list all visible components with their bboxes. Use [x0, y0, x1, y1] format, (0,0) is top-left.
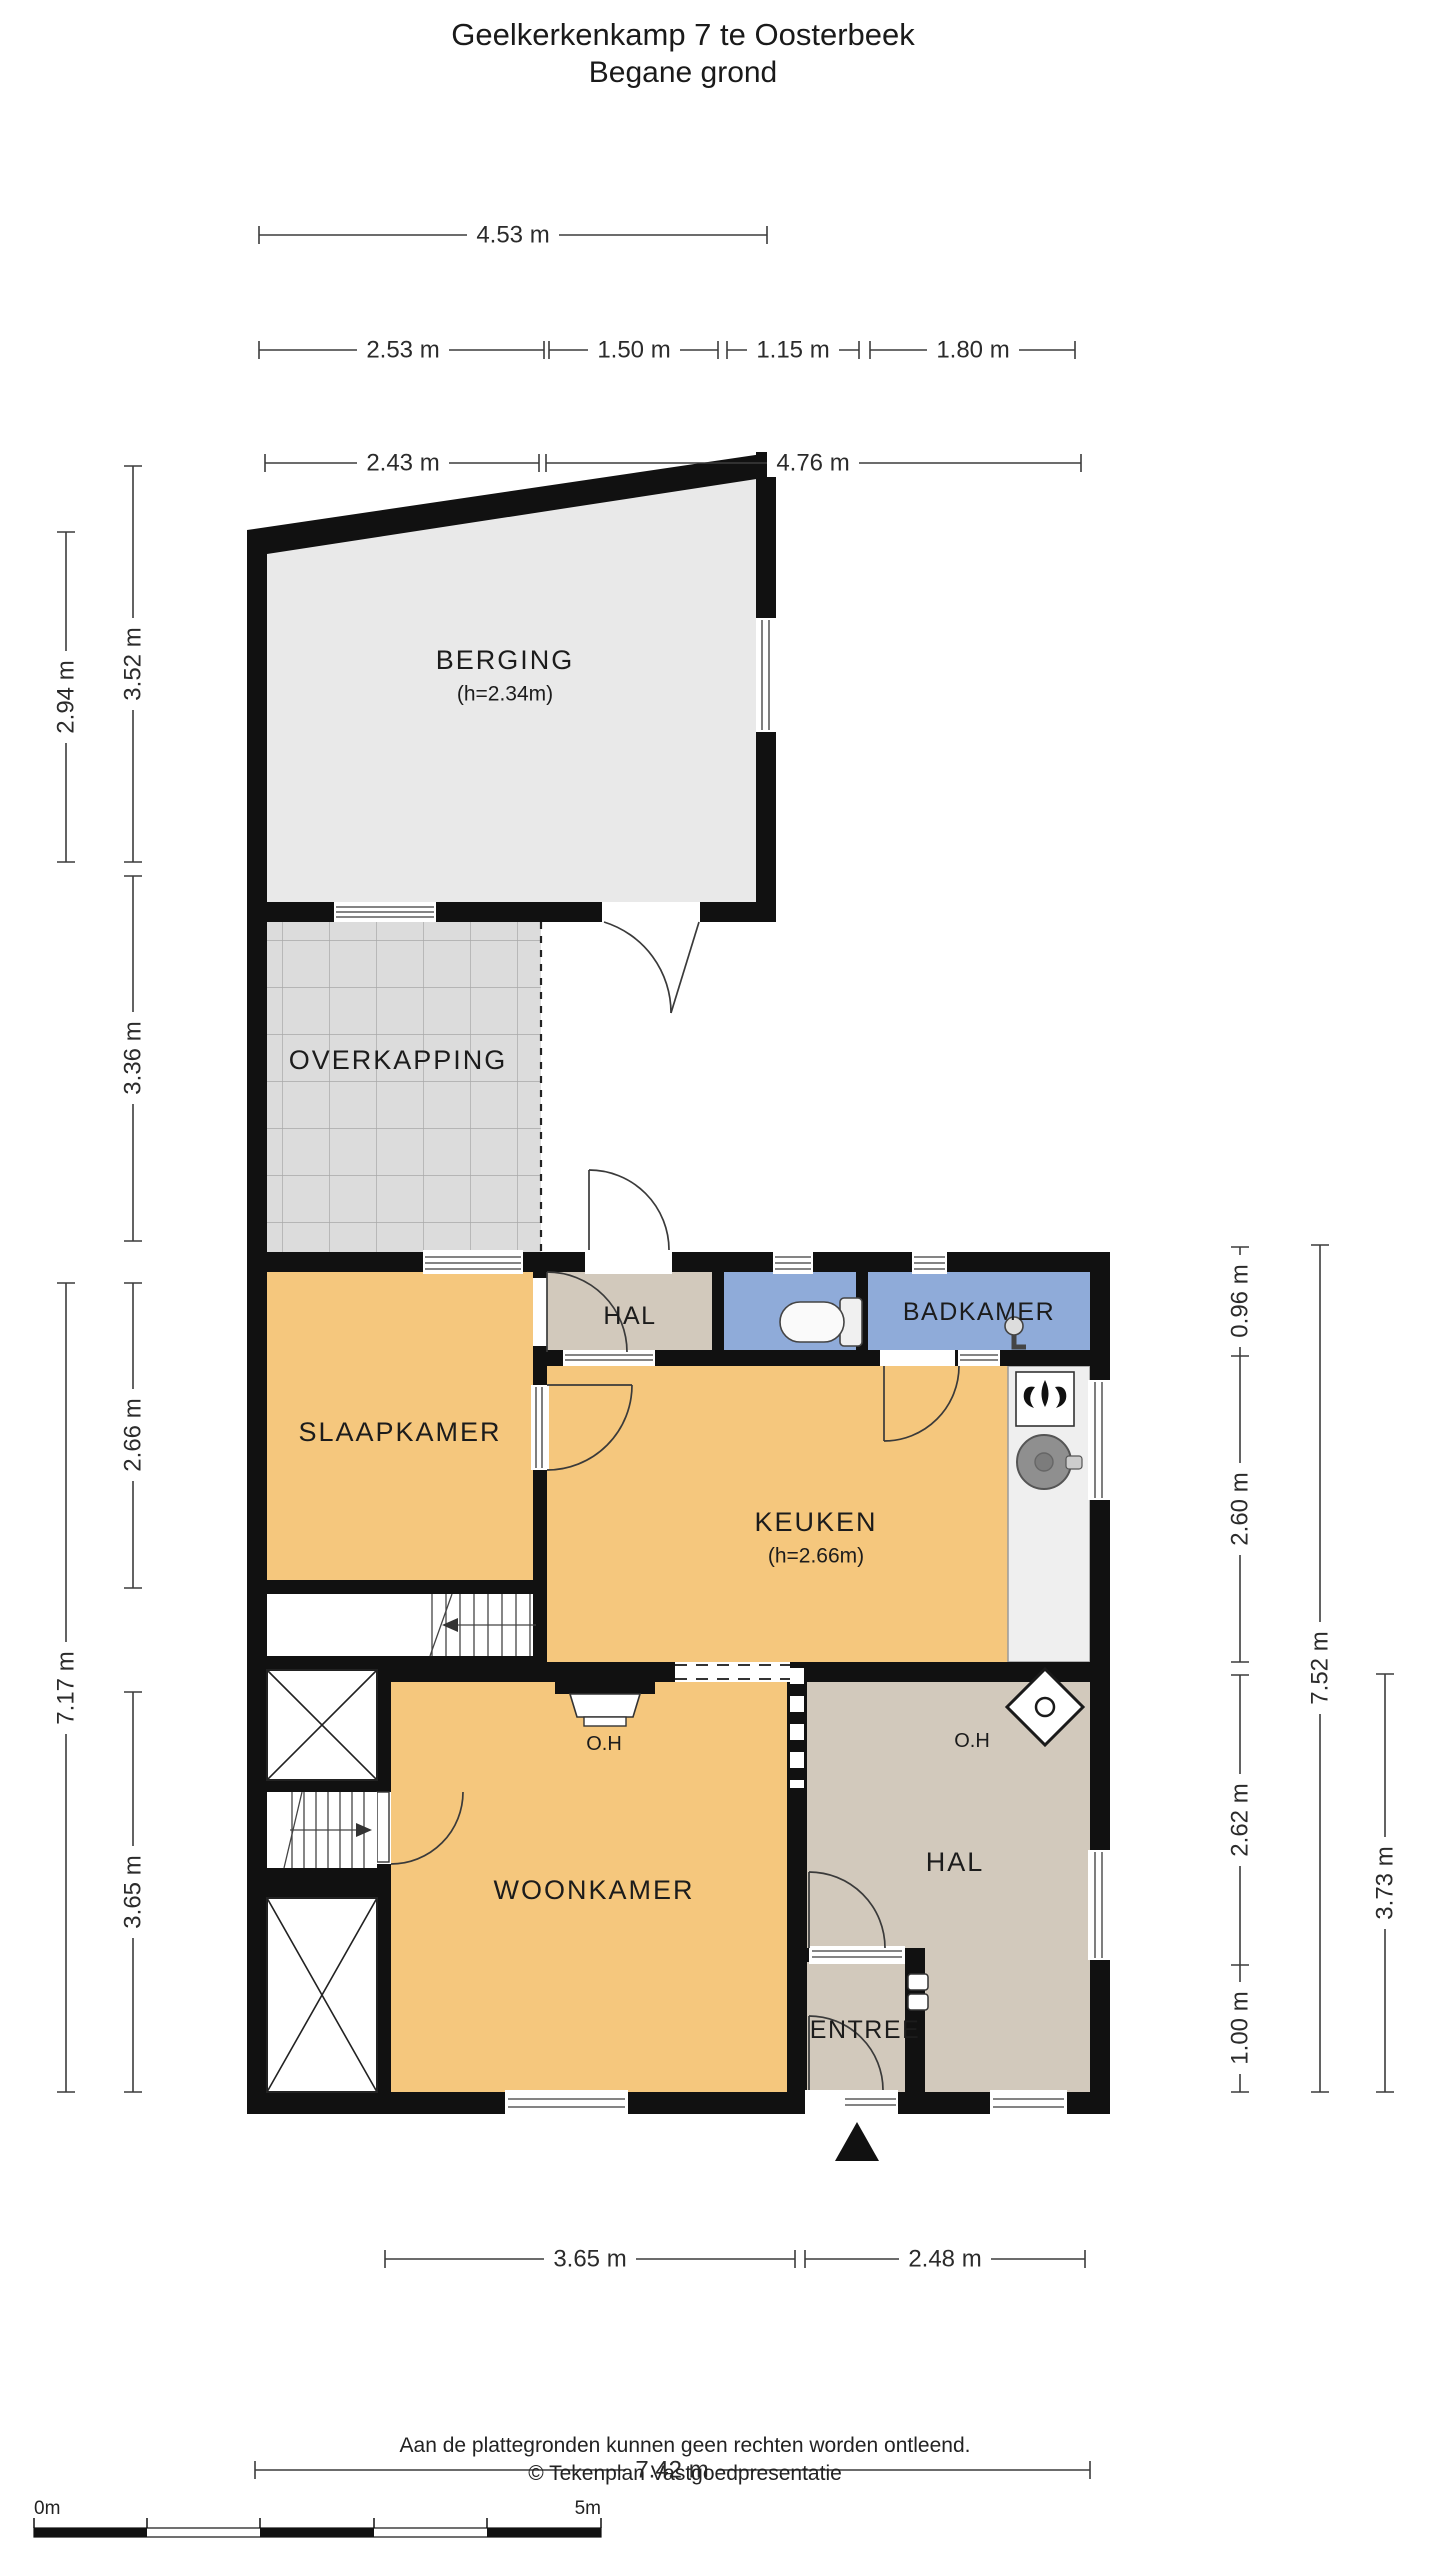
- svg-text:2.53 m: 2.53 m: [366, 337, 439, 364]
- dimension-top-1: 4.53 m: [259, 221, 767, 249]
- dimension-left-6: 7.17 m: [52, 1283, 80, 2092]
- wall-fireplace-bump: [555, 1682, 655, 1694]
- window-hal-east: [1088, 1850, 1112, 1960]
- dimension-bottom-2: 2.48 m: [805, 2245, 1085, 2273]
- window-woonkamer-south: [505, 2090, 628, 2116]
- label-berging-height: (h=2.34m): [457, 683, 553, 706]
- label-oh-hal: O.H: [954, 1730, 990, 1752]
- toilet-bowl-icon: [780, 1302, 844, 1342]
- dimension-right-5: 7.52 m: [1306, 1245, 1334, 2092]
- north-arrow-icon: [835, 2122, 879, 2161]
- room-overkapping-tiles: [252, 922, 541, 1252]
- dimension-top-7: 4.76 m: [546, 449, 1081, 477]
- svg-text:4.76 m: 4.76 m: [776, 450, 849, 477]
- wall-overkapping-left: [247, 922, 267, 1252]
- door-leaf-trap-woonkamer: [377, 1792, 389, 1862]
- door-leaf-berging: [671, 922, 699, 1013]
- svg-text:1.15 m: 1.15 m: [756, 337, 829, 364]
- window-badkamer-north: [912, 1250, 947, 1274]
- fireplace-hal-flue-icon: [1036, 1698, 1054, 1716]
- wall-closet1-bottom: [247, 1780, 391, 1792]
- meter-box-icon-1: [908, 1974, 928, 1990]
- dimension-left-3: 3.36 m: [119, 876, 147, 1241]
- footer-disclaimer: Aan de plattegronden kunnen geen rechten…: [400, 2434, 971, 2457]
- opening-keuken-woonkamer: [675, 1662, 790, 1682]
- sink-tap-icon: [1066, 1456, 1082, 1469]
- wall-slaapkamer-bottom: [247, 1580, 547, 1594]
- dimension-right-6: 3.73 m: [1371, 1674, 1399, 2092]
- door-arc-hal-north: [589, 1170, 669, 1250]
- floorplan-page: Geelkerkenkamp 7 te Oosterbeek Begane gr…: [0, 0, 1440, 2560]
- fireplace-woonkamer-step: [584, 1717, 626, 1726]
- scale-seg-5: [487, 2528, 601, 2537]
- floor-plan-svg: Geelkerkenkamp 7 te Oosterbeek Begane gr…: [0, 0, 1440, 2560]
- svg-text:2.62 m: 2.62 m: [1227, 1783, 1254, 1856]
- window-entree-hal: [809, 1946, 905, 1964]
- window-hal-south: [990, 2090, 1067, 2116]
- wall-keuken-bottom: [547, 1662, 1090, 1682]
- svg-text:4.53 m: 4.53 m: [476, 222, 549, 249]
- wall-hal-toilet: [712, 1272, 724, 1350]
- label-oh-woonkamer: O.H: [586, 1733, 622, 1755]
- label-keuken: KEUKEN: [754, 1507, 877, 1537]
- dimension-bottom-1: 3.65 m: [385, 2245, 795, 2273]
- dimension-top-5: 1.80 m: [870, 336, 1075, 364]
- label-keuken-height: (h=2.66m): [768, 1545, 864, 1568]
- window-slaapkamer-north: [423, 1250, 523, 1274]
- window-berging-east: [756, 618, 776, 732]
- scale-bar: 0m 5m: [34, 2498, 601, 2537]
- scale-start-label: 0m: [34, 2498, 60, 2519]
- svg-text:2.94 m: 2.94 m: [53, 660, 80, 733]
- label-badkamer: BADKAMER: [903, 1298, 1055, 1326]
- svg-text:3.73 m: 3.73 m: [1372, 1846, 1399, 1919]
- wall-house-top: [247, 1252, 1110, 1272]
- svg-text:2.66 m: 2.66 m: [120, 1398, 147, 1471]
- fireplace-woonkamer-icon: [570, 1694, 640, 1717]
- label-overkapping: OVERKAPPING: [289, 1045, 508, 1075]
- wall-house-bottom: [247, 2092, 1110, 2114]
- svg-text:3.65 m: 3.65 m: [553, 2246, 626, 2273]
- label-entree: ENTREE: [810, 2016, 920, 2044]
- svg-text:0.96 m: 0.96 m: [1227, 1264, 1254, 1337]
- sink-drain-icon: [1035, 1453, 1053, 1471]
- label-hal-beneden: HAL: [926, 1847, 985, 1877]
- scale-seg-1: [34, 2528, 147, 2537]
- label-slaapkamer: SLAAPKAMER: [298, 1417, 501, 1447]
- svg-text:2.60 m: 2.60 m: [1227, 1472, 1254, 1545]
- glass-door-slaapkamer-keuken: [531, 1385, 549, 1470]
- wall-stair1-bottom: [247, 1656, 391, 1670]
- door-gap-entree: [805, 2090, 898, 2116]
- window-keuken-east: [1088, 1380, 1112, 1500]
- svg-text:3.36 m: 3.36 m: [120, 1021, 147, 1094]
- page-title: Geelkerkenkamp 7 te Oosterbeek: [451, 17, 915, 52]
- dimension-top-6: 2.43 m: [265, 449, 539, 477]
- svg-text:3.52 m: 3.52 m: [120, 627, 147, 700]
- dimension-left-1: 2.94 m: [52, 532, 80, 862]
- svg-text:1.00 m: 1.00 m: [1227, 1991, 1254, 2064]
- dimension-top-4: 1.15 m: [727, 336, 859, 364]
- svg-text:1.50 m: 1.50 m: [597, 337, 670, 364]
- door-gap-hal-north: [585, 1250, 672, 1274]
- scale-seg-3: [260, 2528, 374, 2537]
- page-subtitle: Begane grond: [589, 56, 778, 89]
- footer-copyright: © Tekenplan Vastgoedpresentatie: [528, 2462, 842, 2485]
- door-gap-berging: [602, 902, 700, 922]
- dimension-top-2: 2.53 m: [259, 336, 544, 364]
- scale-end-label: 5m: [575, 2498, 601, 2519]
- wall-stair2-bottom: [247, 1868, 391, 1898]
- dimension-right-3: 2.62 m: [1226, 1675, 1254, 1965]
- dimension-right-1: 0.96 m: [1226, 1247, 1254, 1356]
- dimension-left-5: 3.65 m: [119, 1692, 147, 2092]
- wall-stair-keuken: [533, 1594, 547, 1662]
- svg-text:3.65 m: 3.65 m: [120, 1855, 147, 1928]
- wall-house-left: [247, 1272, 267, 2114]
- wall-below-stair1: [391, 1656, 547, 1682]
- svg-text:2.43 m: 2.43 m: [366, 450, 439, 477]
- svg-text:7.52 m: 7.52 m: [1307, 1631, 1334, 1704]
- label-hal-boven: HAL: [603, 1302, 656, 1330]
- scale-ticks: [34, 2518, 601, 2528]
- window-badkamer-keuken: [958, 1350, 1000, 1366]
- dimension-left-2: 3.52 m: [119, 466, 147, 862]
- label-berging: BERGING: [436, 645, 575, 675]
- door-gap-slaapkamer: [533, 1278, 547, 1346]
- door-arc-berging: [604, 922, 671, 1013]
- meter-box-icon-2: [908, 1994, 928, 2010]
- label-woonkamer: WOONKAMER: [493, 1875, 694, 1905]
- dimension-right-2: 2.60 m: [1226, 1356, 1254, 1662]
- window-toilet-north: [773, 1250, 813, 1274]
- svg-text:2.48 m: 2.48 m: [908, 2246, 981, 2273]
- svg-text:7.17 m: 7.17 m: [53, 1651, 80, 1724]
- dimension-top-3: 1.50 m: [549, 336, 718, 364]
- wall-berging-left: [247, 530, 267, 922]
- svg-text:1.80 m: 1.80 m: [936, 337, 1009, 364]
- door-gap-badkamer: [880, 1350, 955, 1366]
- dimension-left-4: 2.66 m: [119, 1283, 147, 1588]
- window-hal-keuken: [563, 1350, 655, 1366]
- dimension-right-4: 1.00 m: [1226, 1965, 1254, 2092]
